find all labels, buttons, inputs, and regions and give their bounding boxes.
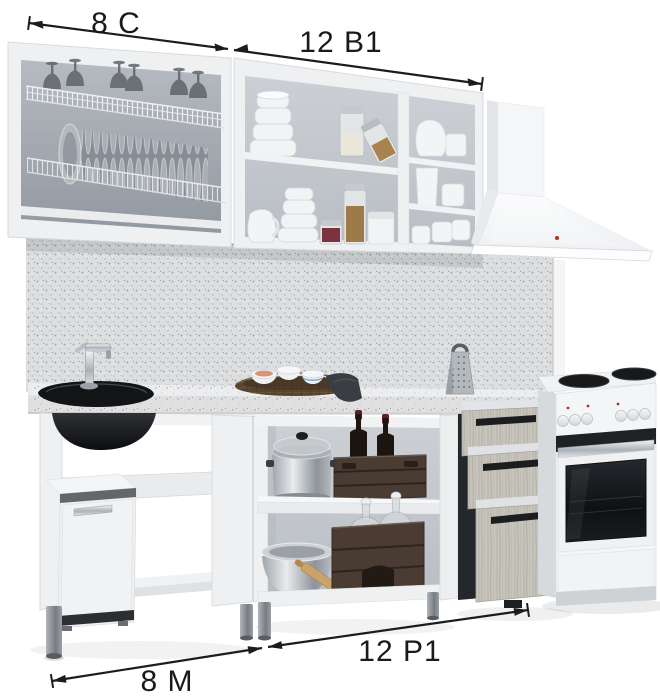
indicator-dot	[587, 405, 590, 408]
hood-indicator-light	[555, 236, 559, 240]
sink-bowl-underside	[52, 413, 156, 450]
duct	[498, 102, 544, 197]
freestanding-stove	[538, 368, 660, 614]
dimension-label-12p1: 12 Р1	[358, 635, 441, 668]
duct-side	[487, 100, 498, 193]
divider	[398, 92, 409, 245]
indicator-dot	[567, 407, 570, 410]
stove-side	[538, 390, 556, 598]
indicator-dot	[617, 403, 620, 406]
mini-cabinet-door	[61, 499, 133, 617]
leg	[46, 606, 62, 656]
stock-pot	[266, 432, 338, 501]
leg	[240, 604, 253, 638]
leg	[427, 592, 439, 618]
dimension-label-12b1: 12 В1	[299, 26, 382, 59]
wall-cabinet-8c	[8, 42, 231, 247]
lid-knob	[296, 432, 308, 440]
burner-plate	[612, 368, 656, 380]
wall-cabinet-12b1	[234, 58, 483, 254]
dimension-label-8c: 8 С	[91, 7, 141, 40]
dimension-label-8m: 8 М	[140, 665, 193, 698]
leg	[258, 602, 271, 638]
cooker-hood	[471, 100, 652, 261]
base-module-8m	[30, 413, 268, 659]
wine-crate-lower	[332, 522, 424, 594]
burner-plate	[559, 375, 609, 388]
kitchen-product-image: 8 С 12 В1 8 М 12 Р1	[0, 0, 660, 700]
kitchen-scene: 8 С 12 В1 8 М 12 Р1	[0, 0, 660, 700]
wine-crate-upper	[334, 455, 426, 500]
